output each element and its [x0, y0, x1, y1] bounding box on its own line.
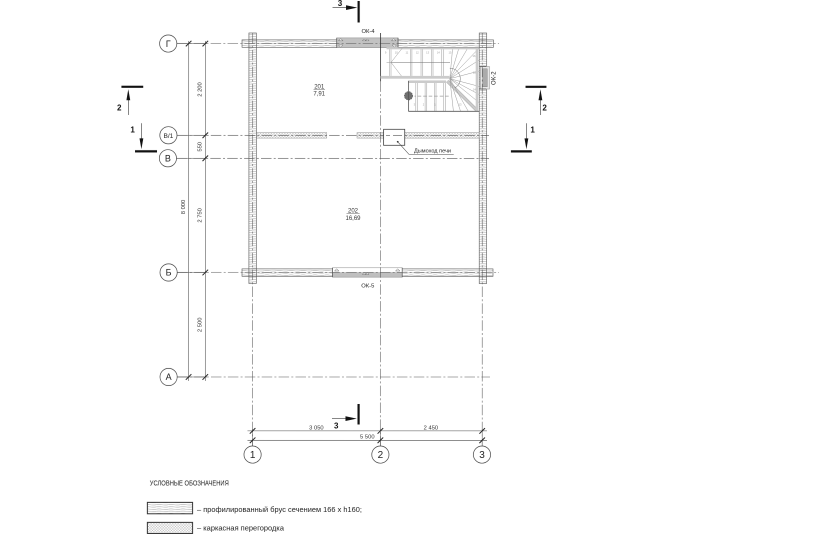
svg-text:2 750: 2 750: [197, 208, 203, 223]
svg-text:1: 1: [530, 125, 535, 134]
svg-text:В/1: В/1: [163, 133, 173, 140]
svg-text:2 500: 2 500: [197, 318, 203, 333]
svg-text:ОК-4: ОК-4: [362, 29, 376, 35]
svg-text:Г: Г: [166, 39, 171, 49]
svg-text:3 050: 3 050: [309, 425, 324, 431]
svg-text:УСЛОВНЫЕ ОБОЗНАЧЕНИЯ: УСЛОВНЫЕ ОБОЗНАЧЕНИЯ: [150, 478, 229, 487]
svg-text:2: 2: [542, 104, 547, 113]
svg-text:1: 1: [130, 125, 135, 134]
svg-text:2: 2: [378, 450, 384, 461]
svg-text:В: В: [165, 153, 171, 163]
svg-text:Дымоход печи: Дымоход печи: [414, 149, 451, 155]
svg-text:7,91: 7,91: [313, 91, 325, 97]
svg-text:2: 2: [117, 104, 122, 113]
svg-text:2 450: 2 450: [424, 425, 439, 431]
svg-text:8 000: 8 000: [181, 200, 187, 215]
svg-text:А: А: [166, 372, 172, 382]
svg-text:3: 3: [334, 422, 339, 431]
svg-text:– каркасная перегородка: – каркасная перегородка: [197, 524, 285, 533]
svg-text:2 200: 2 200: [197, 82, 203, 97]
svg-text:Б: Б: [166, 268, 172, 278]
svg-text:ОК-2: ОК-2: [492, 71, 498, 85]
svg-text:– профилированный брус сечение: – профилированный брус сечением 166 х h1…: [197, 505, 362, 514]
svg-text:3: 3: [338, 0, 343, 8]
svg-text:5 500: 5 500: [360, 435, 375, 441]
svg-text:16,69: 16,69: [345, 216, 361, 222]
svg-text:550: 550: [197, 142, 203, 152]
svg-text:ОК-5: ОК-5: [361, 283, 374, 289]
svg-text:3: 3: [479, 450, 485, 461]
svg-text:1: 1: [250, 450, 256, 461]
